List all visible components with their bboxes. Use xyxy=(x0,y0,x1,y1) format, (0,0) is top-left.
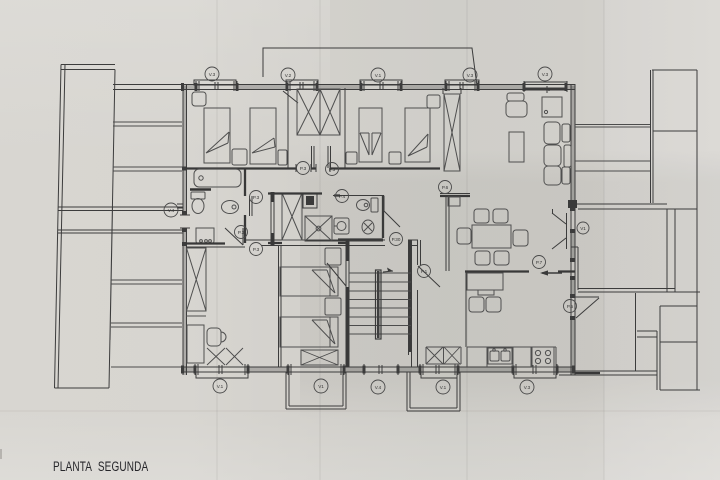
svg-text:P.3: P.3 xyxy=(329,167,336,172)
svg-text:P.3: P.3 xyxy=(300,166,307,171)
svg-text:V.3: V.3 xyxy=(542,72,549,77)
svg-text:V.4: V.4 xyxy=(168,208,175,213)
svg-text:P.4: P.4 xyxy=(339,194,346,199)
svg-text:V.1: V.1 xyxy=(217,384,224,389)
svg-text:P.3: P.3 xyxy=(253,247,260,252)
svg-text:P.6: P.6 xyxy=(442,185,449,190)
svg-text:P.3: P.3 xyxy=(238,230,245,235)
svg-text:V1: V1 xyxy=(580,226,586,231)
svg-text:V.3: V.3 xyxy=(524,385,531,390)
svg-text:V.4: V.4 xyxy=(375,385,382,390)
svg-text:P.3: P.3 xyxy=(253,195,260,200)
svg-text:V.1: V.1 xyxy=(440,385,447,390)
svg-text:P.1: P.1 xyxy=(421,269,428,274)
svg-text:V.3: V.3 xyxy=(209,72,216,77)
svg-text:P.5: P.5 xyxy=(567,304,574,309)
svg-text:V1: V1 xyxy=(318,384,324,389)
svg-text:V.2: V.2 xyxy=(285,73,292,78)
svg-text:P.30: P.30 xyxy=(392,237,401,242)
svg-text:V.3: V.3 xyxy=(467,73,474,78)
svg-text:V.1: V.1 xyxy=(375,73,382,78)
svg-text:P.7: P.7 xyxy=(536,260,543,265)
